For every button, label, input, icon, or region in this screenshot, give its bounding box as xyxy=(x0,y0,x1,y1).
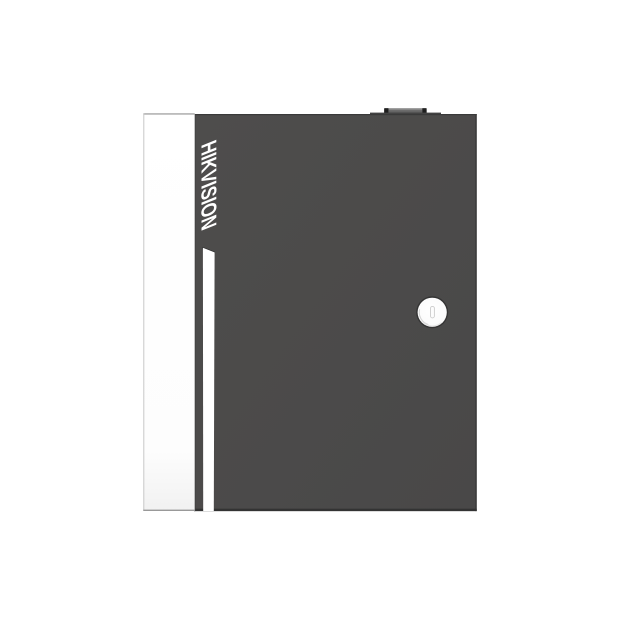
svg-text:HIKVISION: HIKVISION xyxy=(197,137,221,234)
